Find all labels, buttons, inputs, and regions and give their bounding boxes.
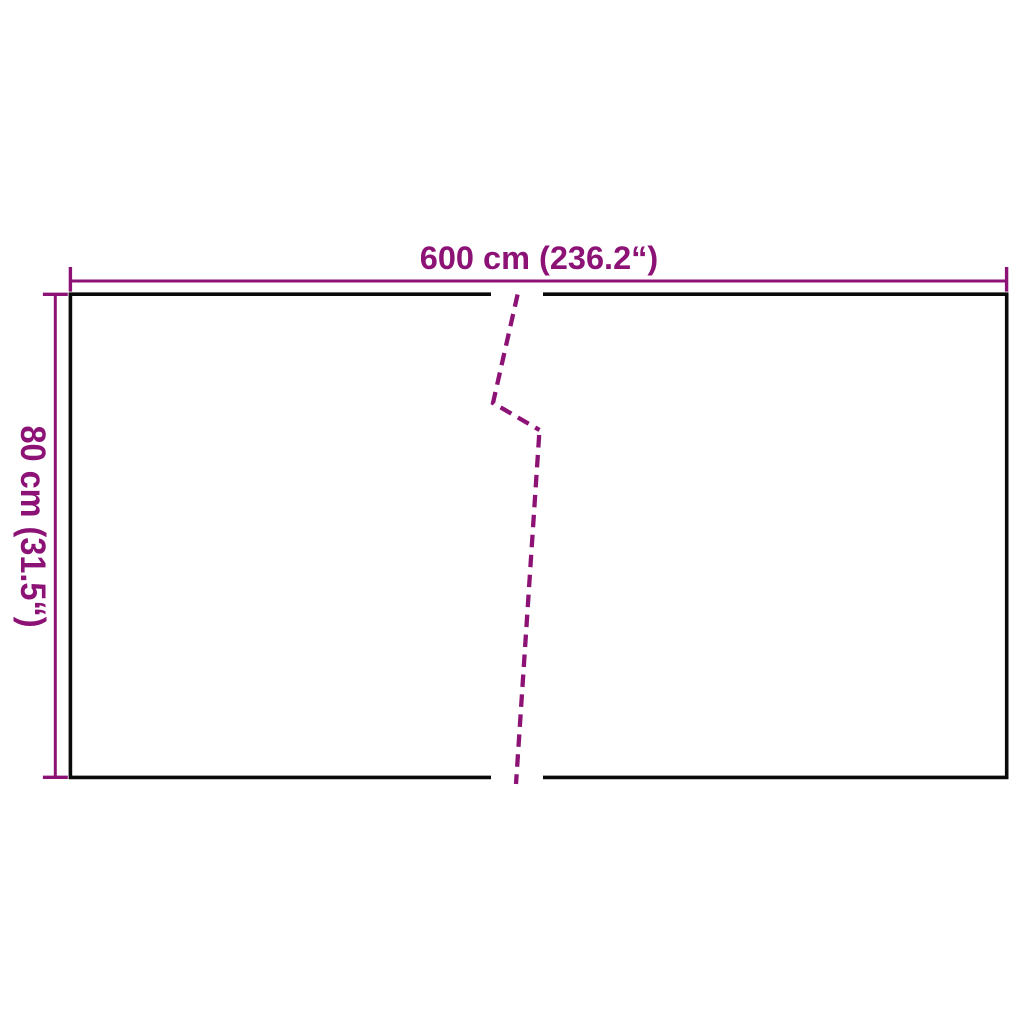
svg-text:600 cm (236.2“): 600 cm (236.2“) [420,240,658,276]
svg-text:80 cm (31.5“): 80 cm (31.5“) [13,426,53,628]
